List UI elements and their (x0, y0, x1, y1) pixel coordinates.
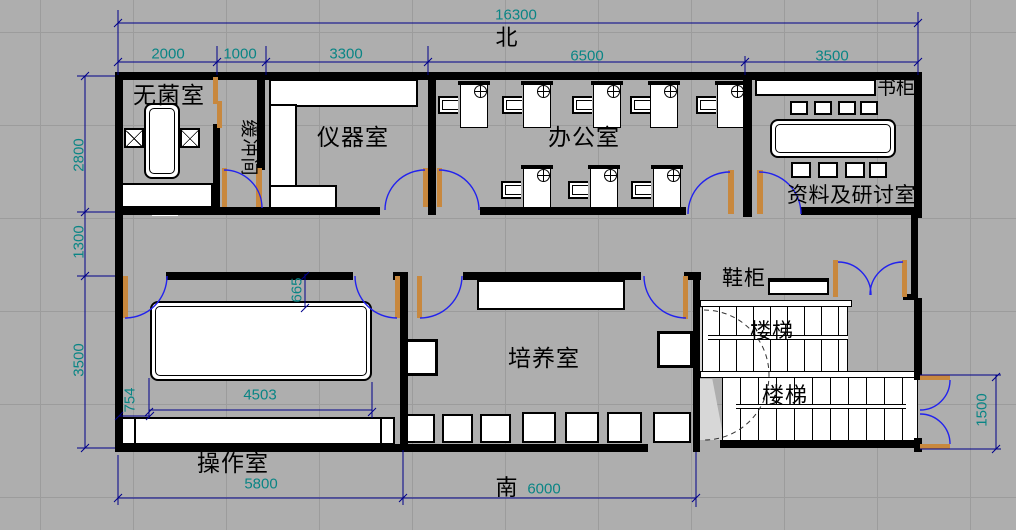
dim-entry-1500: 1500 (975, 393, 990, 426)
room-label-office: 办公室 (548, 126, 620, 149)
label-shoe-cabinet: 鞋柜 (722, 268, 766, 289)
room-label-archive: 资料及研讨室 (787, 185, 916, 206)
room-label-sterile: 无菌室 (133, 84, 205, 107)
dim-top-3500: 3500 (815, 49, 848, 64)
dim-665: 665 (290, 277, 305, 302)
dim-bottom-6000: 6000 (527, 482, 560, 497)
dim-top-6500: 6500 (570, 49, 603, 64)
label-bookcase: 书柜 (877, 79, 915, 98)
dim-top-1000: 1000 (223, 47, 256, 62)
label-stairs-upper: 楼梯 (750, 321, 794, 342)
dim-754: 754 (123, 387, 138, 412)
dim-left-2800: 2800 (72, 138, 87, 171)
compass-south: 南 (495, 477, 518, 499)
cad-floorplan-canvas[interactable]: 16300 2000 1000 3300 6500 3500 2800 1300… (0, 0, 1016, 530)
room-label-culture: 培养室 (508, 347, 580, 370)
dim-total-width: 16300 (495, 8, 537, 23)
dim-4503: 4503 (243, 388, 276, 403)
compass-north: 北 (495, 27, 518, 49)
label-stairs-lower: 楼梯 (762, 385, 808, 407)
dimension-and-door-arc-layer (0, 0, 1016, 530)
room-label-instrument: 仪器室 (317, 126, 389, 149)
room-label-operation: 操作室 (197, 452, 269, 475)
room-label-buffer: 缓冲间 (240, 120, 258, 177)
dim-bottom-5800: 5800 (244, 477, 277, 492)
dim-top-3300: 3300 (329, 47, 362, 62)
dim-left-1300: 1300 (72, 225, 87, 258)
dim-top-2000: 2000 (151, 47, 184, 62)
dim-left-3500: 3500 (72, 343, 87, 376)
